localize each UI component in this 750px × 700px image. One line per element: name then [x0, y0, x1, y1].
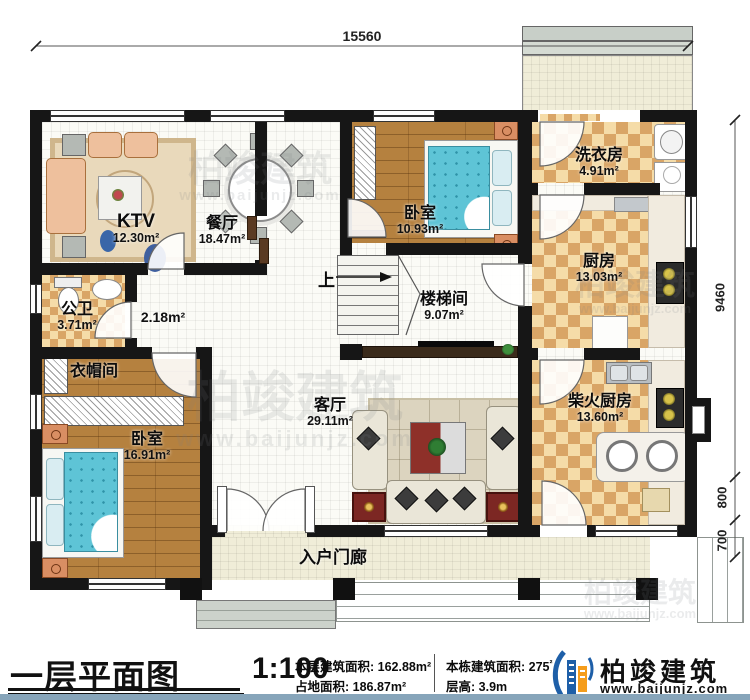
title-underline [8, 688, 240, 691]
window [88, 578, 166, 590]
porch-column [180, 578, 202, 600]
room-label-dining: 餐厅 18.47m² [199, 216, 246, 247]
room-label-living: 客厅 29.11m² [307, 398, 353, 429]
washing-machine-door [663, 166, 681, 184]
porch-column [518, 578, 540, 600]
sofa [46, 158, 86, 234]
window [373, 110, 435, 122]
wardrobe [44, 396, 184, 426]
pillow [46, 504, 64, 546]
chimney [692, 406, 705, 434]
window [685, 196, 697, 248]
window [30, 394, 42, 430]
tv-cabinet [362, 346, 518, 358]
room-label-cloakroom: 衣帽间 [70, 364, 118, 381]
watermark: 柏竣建筑 www.baijunjz.com [179, 150, 340, 204]
terrace-step [522, 41, 693, 55]
room-label-porch: 入户门廊 [299, 549, 367, 567]
burner [663, 409, 675, 421]
bottom-accent-strip [0, 694, 750, 700]
watermark: 柏竣建筑 www.baijunjz.com [584, 578, 696, 621]
sink-basin [630, 365, 648, 381]
dim-height-700: 700 [715, 523, 730, 559]
side-table [486, 492, 520, 522]
plant [502, 344, 514, 355]
tv [418, 341, 494, 347]
burner [663, 393, 675, 405]
side-table [352, 492, 386, 522]
window [595, 525, 678, 537]
side-table [62, 134, 86, 156]
porch-column [333, 578, 355, 600]
dim-height-800: 800 [715, 480, 730, 516]
laundry-sink-basin [660, 130, 683, 154]
room-label-bedroom2: 卧室 16.91m² [124, 432, 171, 463]
window [210, 110, 285, 122]
door-opening [540, 525, 587, 537]
plant [428, 438, 446, 456]
room-label-firewood-kitchen: 柴火厨房 13.60m² [568, 394, 632, 425]
armchair [88, 132, 122, 158]
title-bar: 一层平面图 1:100 本层建筑面积: 162.88m² 占地面积: 186.8… [0, 648, 750, 700]
porch-threshold [225, 525, 307, 537]
stat-divider [434, 654, 435, 692]
room-label-kitchen: 厨房 13.03m² [576, 254, 623, 285]
stairs-up-label: 上 [318, 266, 335, 291]
watermark: 柏竣建筑 www.baijunjz.com [176, 370, 414, 450]
kitchen-sink [614, 197, 650, 212]
bed-mattress [64, 452, 118, 552]
nightstand [42, 424, 68, 444]
stairs [337, 255, 399, 335]
nightstand [494, 120, 518, 140]
terrace-floor [522, 55, 693, 112]
porch-floor [212, 537, 650, 580]
stat-story-height: 层高: 3.9m [446, 676, 507, 695]
sink [92, 279, 122, 300]
room-label-bathroom: 公卫 3.71m² [57, 302, 97, 333]
flower-decor [112, 189, 124, 201]
floor-plan-canvas: 柏竣建筑 www.baijunjz.com 柏竣建筑 www.baijunjz.… [0, 0, 750, 700]
stat-land-area: 占地面积: 186.87m² [295, 676, 406, 695]
entrance-door-leaf [305, 486, 315, 533]
pillow [492, 190, 512, 226]
door-leaf [348, 230, 386, 238]
stat-floor-area: 本层建筑面积: 162.88m² [295, 656, 431, 675]
sliding-door [247, 216, 257, 240]
stat-total-area: 本栋建筑面积: 275² [446, 656, 553, 675]
window [50, 110, 185, 122]
room-label-bedroom1: 卧室 10.93m² [397, 206, 444, 237]
wok-opening [606, 440, 638, 472]
terrace-step [522, 26, 693, 41]
window [30, 284, 42, 314]
porch-steps-left [196, 600, 336, 629]
sink-basin [610, 365, 628, 381]
armchair [124, 132, 158, 158]
sliding-door [259, 238, 269, 264]
dim-total-width: 15560 [322, 28, 402, 44]
window [30, 496, 42, 542]
room-label-stairwell: 楼梯间 9.07m² [420, 292, 468, 323]
threshold [540, 114, 600, 121]
room-label-laundry: 洗衣房 4.91m² [575, 148, 623, 179]
room-label-hallway: 2.18m² [141, 310, 185, 325]
fridge [592, 316, 628, 350]
window [384, 525, 488, 537]
dim-height-main: 9460 [713, 276, 728, 320]
pillow [492, 150, 512, 186]
room-label-ktv: KTV 12.30m² [113, 212, 160, 246]
side-table [62, 236, 86, 258]
wardrobe [354, 126, 376, 200]
pillow [46, 458, 64, 500]
nightstand [42, 558, 68, 578]
wok-opening [646, 440, 678, 472]
entrance-door-leaf [217, 486, 227, 533]
stool [642, 488, 670, 512]
brand-logo-icon [548, 648, 598, 698]
